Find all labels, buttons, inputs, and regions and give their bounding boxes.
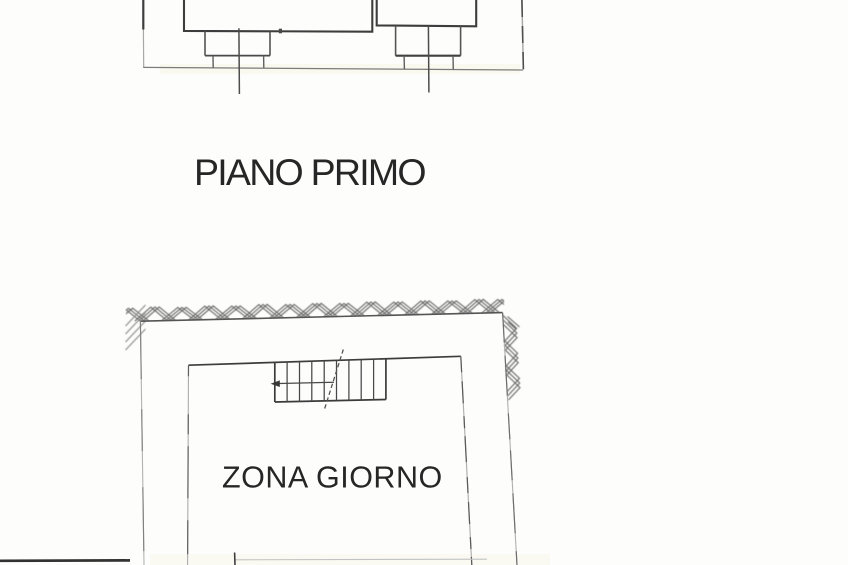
svg-text:ZONA GIORNO: ZONA GIORNO: [222, 461, 443, 495]
svg-text:PIANO PRIMO: PIANO PRIMO: [194, 151, 425, 193]
